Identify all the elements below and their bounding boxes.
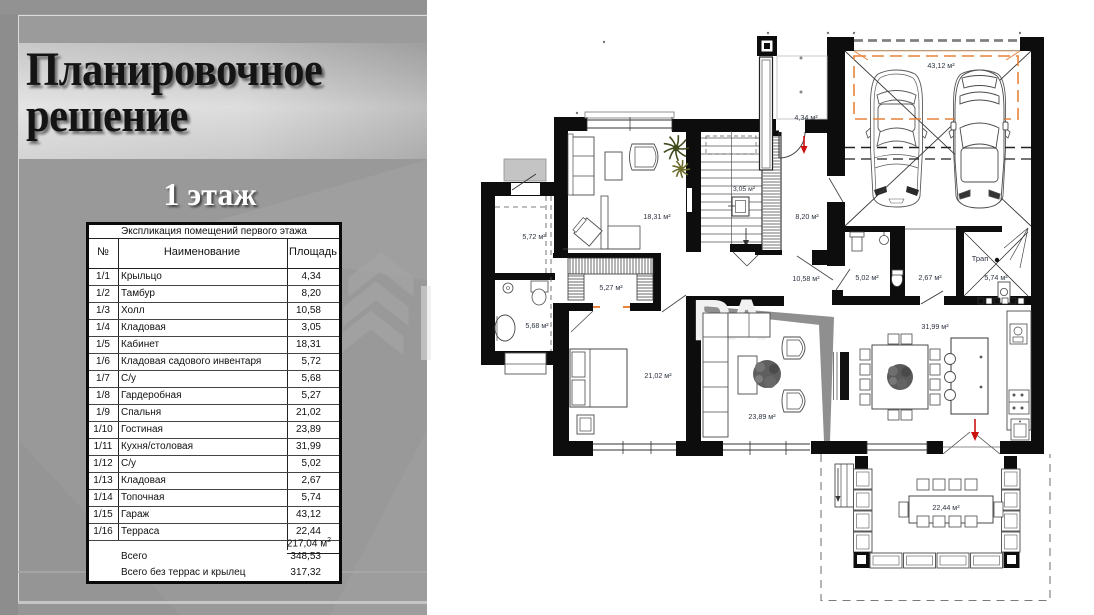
svg-text:43,12 м²: 43,12 м² — [927, 61, 955, 70]
svg-text:8,20 м²: 8,20 м² — [795, 212, 819, 221]
svg-text:10,58 м²: 10,58 м² — [792, 274, 820, 283]
svg-text:21,02 м²: 21,02 м² — [644, 371, 672, 380]
svg-text:4,34 м²: 4,34 м² — [794, 113, 818, 122]
svg-text:18,31 м²: 18,31 м² — [643, 212, 671, 221]
svg-text:23,89 м²: 23,89 м² — [748, 412, 776, 421]
svg-text:31,99 м²: 31,99 м² — [921, 322, 949, 331]
svg-text:22,44 м²: 22,44 м² — [932, 503, 960, 512]
svg-text:5,02 м²: 5,02 м² — [855, 273, 879, 282]
svg-text:5,74 м²: 5,74 м² — [984, 273, 1008, 282]
svg-text:2,67 м²: 2,67 м² — [918, 273, 942, 282]
svg-text:5,27 м²: 5,27 м² — [599, 283, 623, 292]
svg-text:5,72 м²: 5,72 м² — [522, 232, 546, 241]
svg-text:3,05 м²: 3,05 м² — [733, 186, 756, 193]
svg-text:5,68 м²: 5,68 м² — [525, 321, 549, 330]
svg-text:Трап: Трап — [972, 254, 989, 263]
